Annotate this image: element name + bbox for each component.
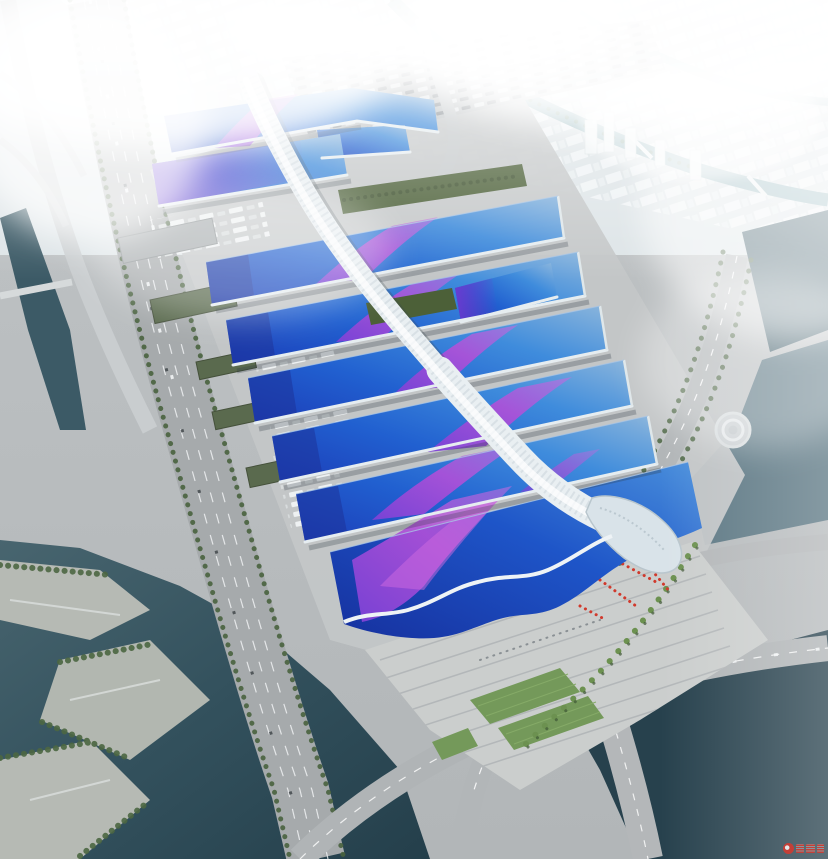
watermark-glyph-block bbox=[817, 844, 824, 853]
watermark-glyph-block bbox=[796, 844, 804, 853]
watermark-badge-icon bbox=[783, 843, 794, 854]
fog-wisp bbox=[580, 60, 820, 180]
rendering-canvas: Aerial rendering of a riverside exhibiti… bbox=[0, 0, 828, 859]
watermark-logo bbox=[783, 843, 824, 854]
aerial-rendering: Aerial rendering of a riverside exhibiti… bbox=[0, 0, 828, 859]
watermark-glyph-block bbox=[806, 844, 815, 853]
